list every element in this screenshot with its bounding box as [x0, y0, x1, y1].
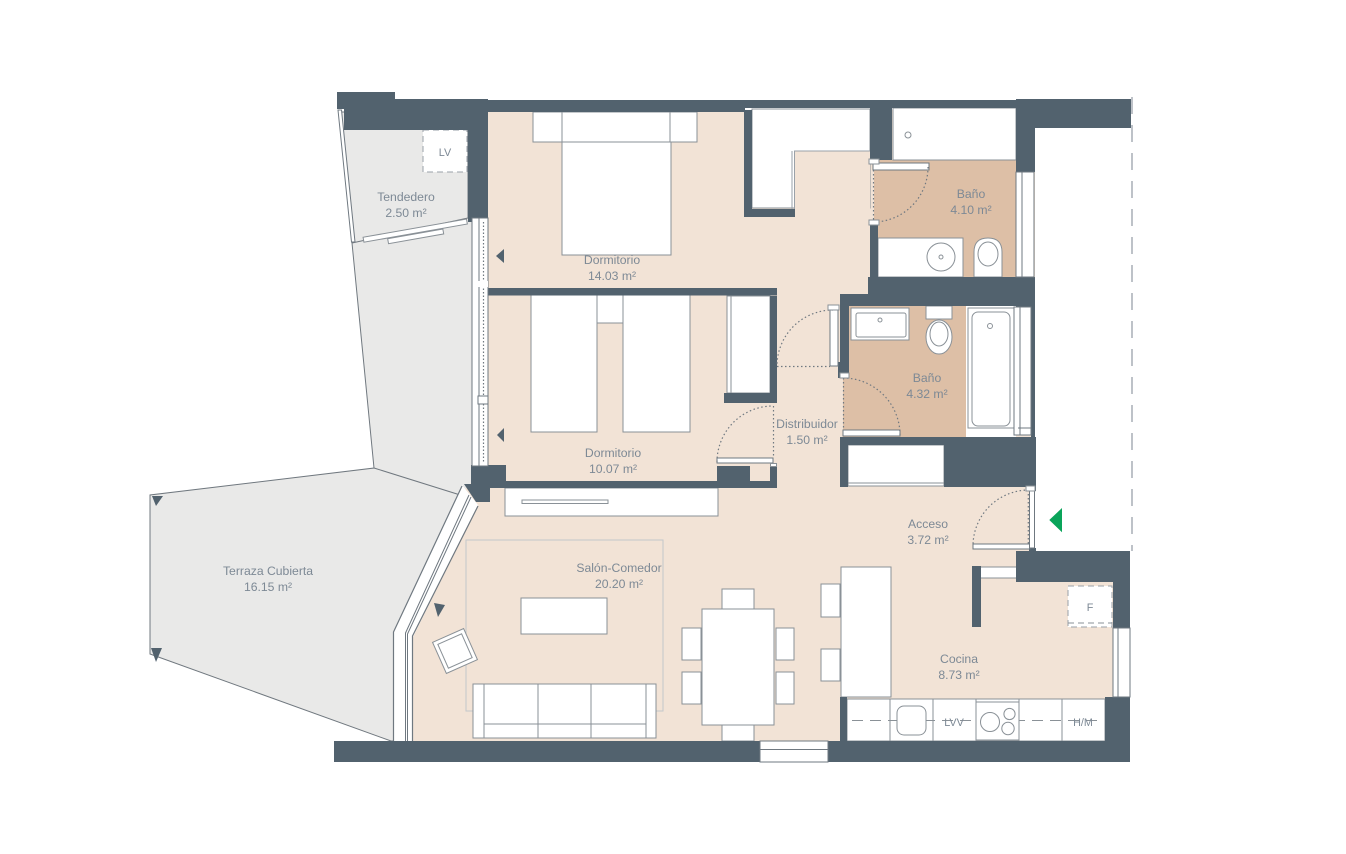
- svg-text:Baño: Baño: [913, 371, 942, 385]
- svg-text:Salón-Comedor: Salón-Comedor: [576, 561, 661, 575]
- svg-text:1.50 m²: 1.50 m²: [786, 433, 827, 447]
- svg-text:Dormitorio: Dormitorio: [584, 253, 640, 267]
- svg-text:16.15 m²: 16.15 m²: [244, 580, 292, 594]
- svg-text:Acceso: Acceso: [908, 517, 948, 531]
- svg-text:10.07 m²: 10.07 m²: [589, 462, 637, 476]
- svg-text:F: F: [1087, 602, 1094, 614]
- svg-text:20.20 m²: 20.20 m²: [595, 577, 643, 591]
- svg-text:Dormitorio: Dormitorio: [585, 446, 641, 460]
- svg-text:14.03 m²: 14.03 m²: [588, 269, 636, 283]
- svg-text:Terraza Cubierta: Terraza Cubierta: [223, 564, 313, 578]
- svg-text:3.72 m²: 3.72 m²: [907, 533, 948, 547]
- svg-text:LVV: LVV: [944, 717, 964, 729]
- svg-text:8.73 m²: 8.73 m²: [938, 668, 979, 682]
- svg-text:LV: LV: [439, 147, 452, 159]
- svg-text:4.10 m²: 4.10 m²: [950, 203, 991, 217]
- svg-text:Tendedero: Tendedero: [377, 190, 435, 204]
- svg-text:4.32 m²: 4.32 m²: [906, 387, 947, 401]
- svg-text:Distribuidor: Distribuidor: [776, 417, 838, 431]
- svg-text:Cocina: Cocina: [940, 652, 978, 666]
- svg-text:Baño: Baño: [957, 187, 986, 201]
- svg-text:2.50 m²: 2.50 m²: [385, 206, 426, 220]
- svg-text:H/M: H/M: [1073, 717, 1093, 729]
